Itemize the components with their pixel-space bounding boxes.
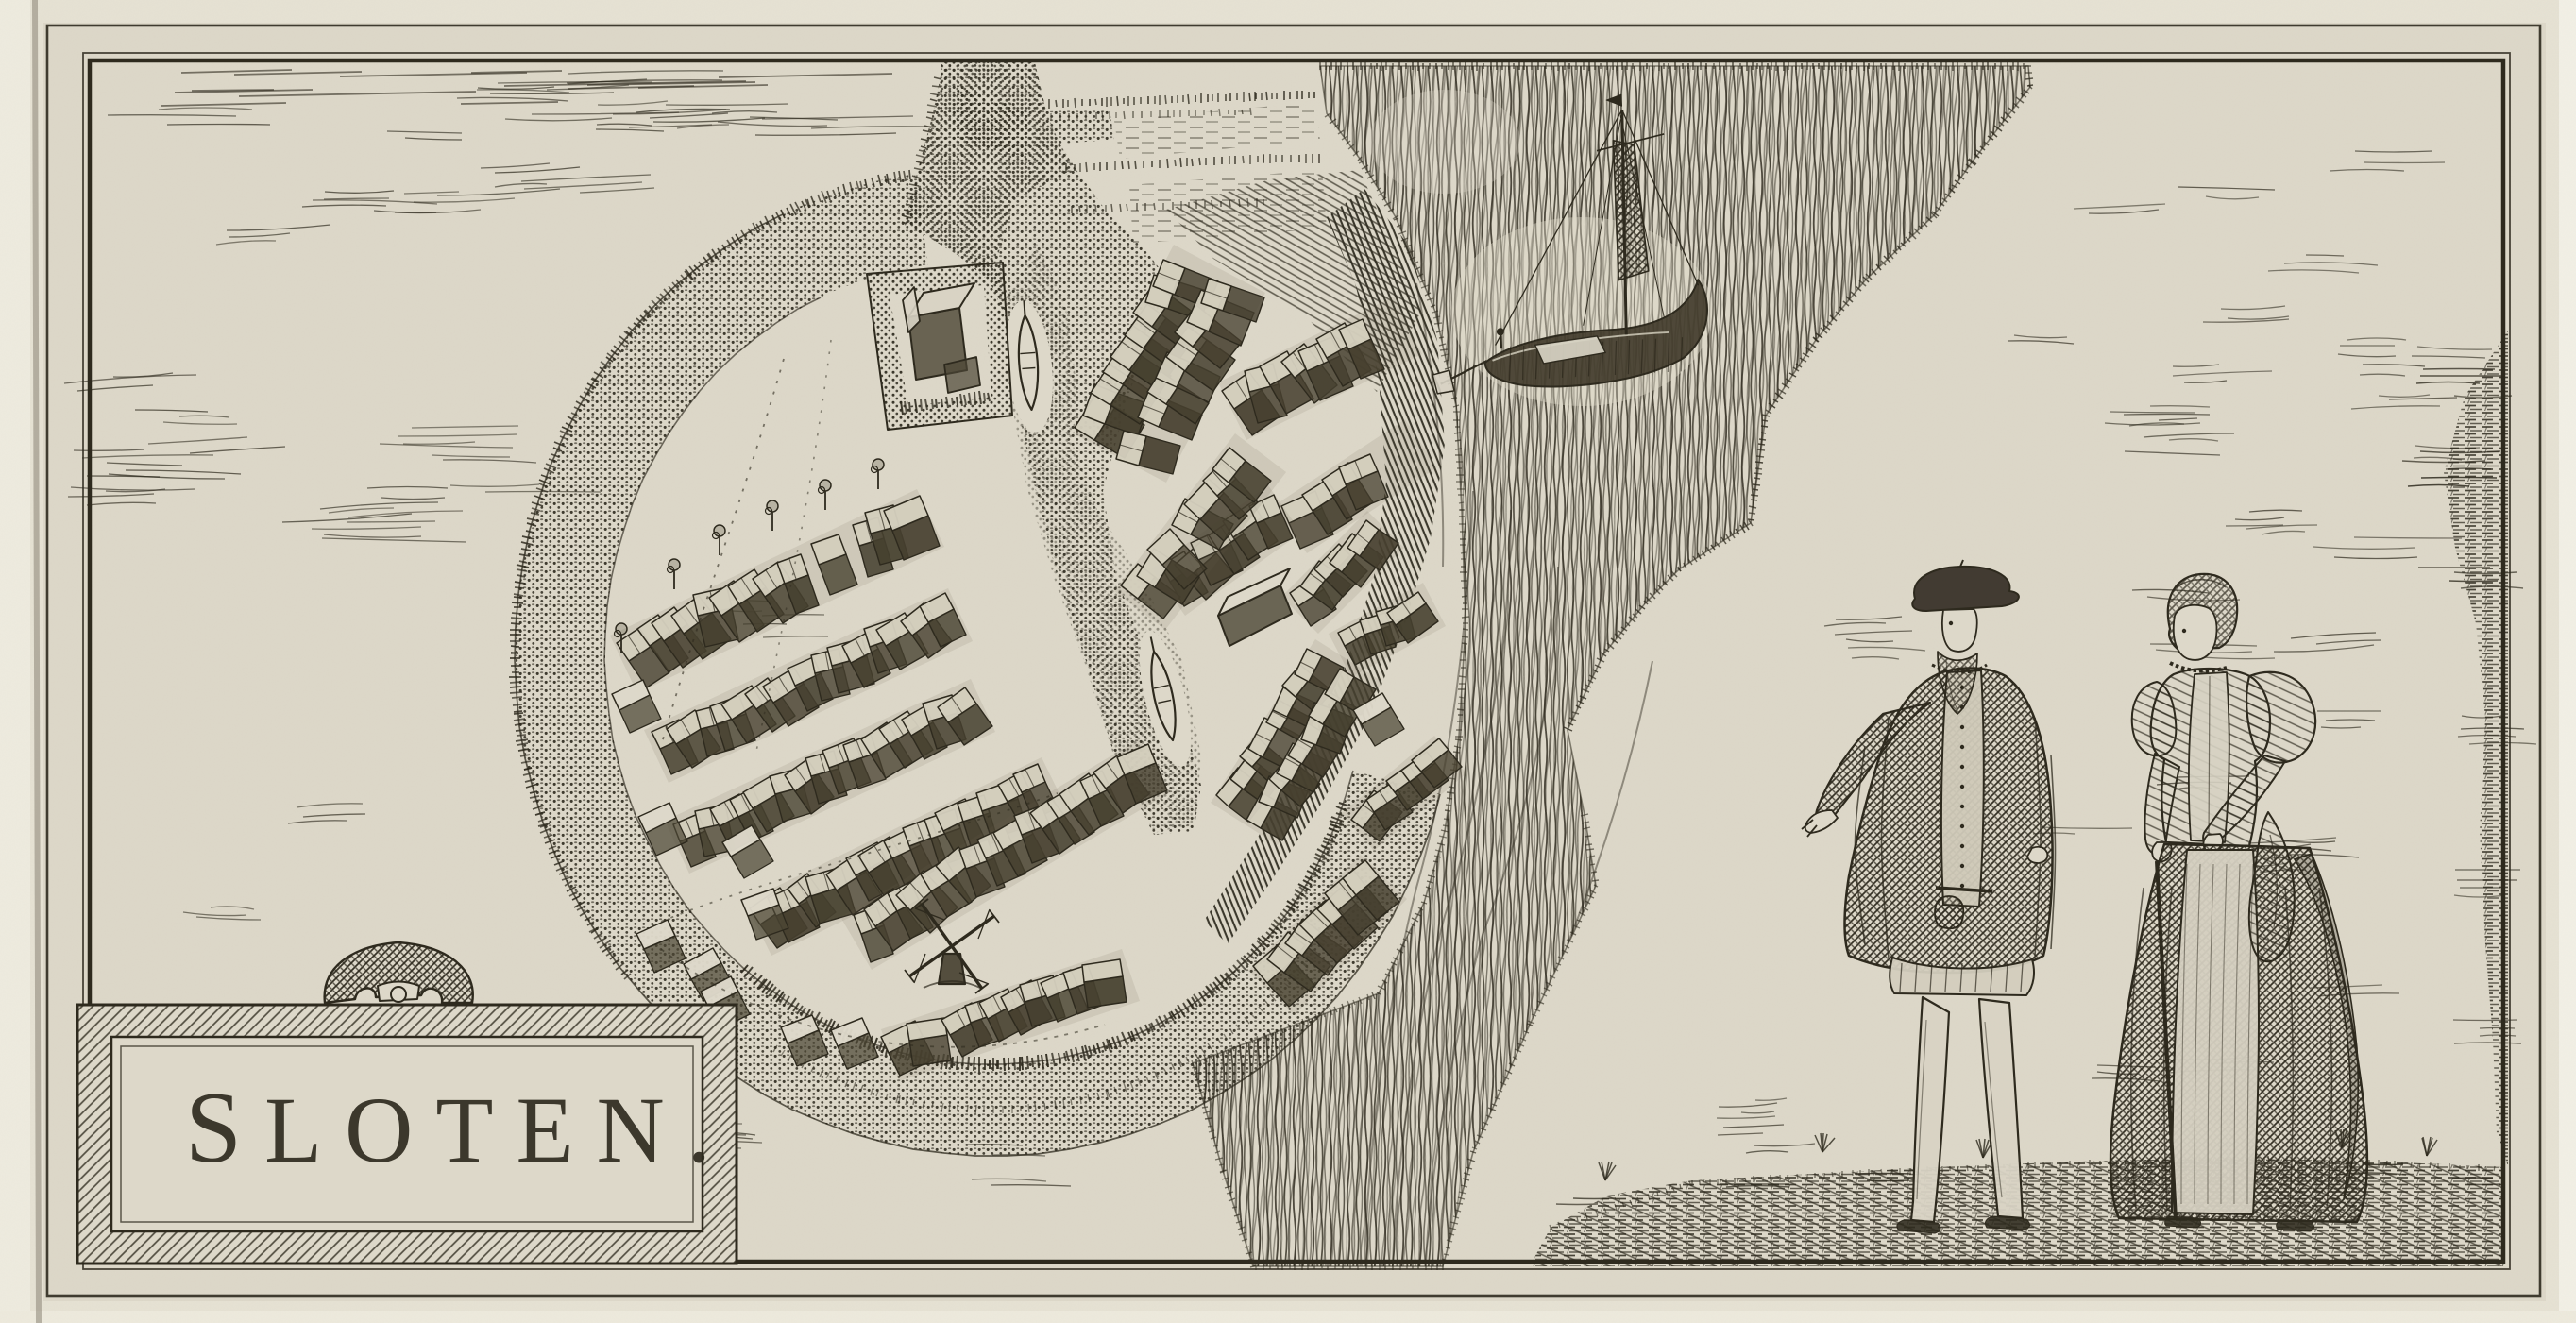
svg-text:SLOTEN.: SLOTEN.: [185, 1072, 734, 1184]
